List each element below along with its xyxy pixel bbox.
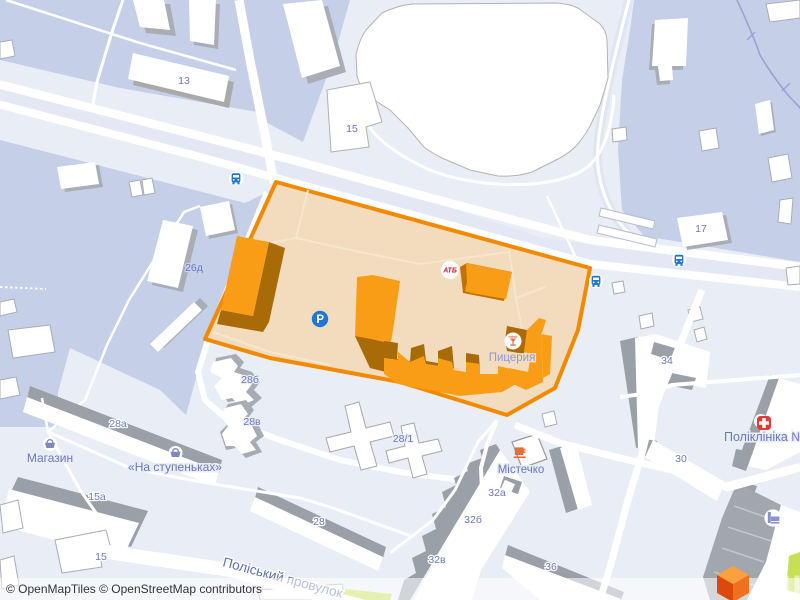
- svg-text:36: 36: [545, 561, 557, 573]
- svg-text:© OpenMapTiles © OpenStreetMap: © OpenMapTiles © OpenStreetMap contribut…: [6, 582, 262, 596]
- svg-text:15: 15: [95, 551, 107, 563]
- svg-text:30: 30: [675, 453, 687, 465]
- svg-text:26д: 26д: [185, 262, 203, 274]
- svg-text:15а: 15а: [88, 491, 106, 503]
- svg-text:13: 13: [178, 75, 190, 87]
- svg-text:ДН: ДН: [768, 569, 800, 600]
- svg-text:«На ступеньках»: «На ступеньках»: [128, 460, 222, 474]
- svg-text:28: 28: [313, 516, 325, 528]
- svg-text:32в: 32в: [428, 554, 446, 566]
- svg-text:28в: 28в: [243, 416, 261, 428]
- svg-text:Містечко: Містечко: [498, 464, 545, 476]
- svg-text:15: 15: [346, 123, 358, 135]
- svg-text:17: 17: [695, 223, 707, 235]
- svg-text:Магазин: Магазин: [27, 451, 73, 465]
- svg-text:Пицерия: Пицерия: [489, 352, 536, 364]
- svg-text:28а: 28а: [109, 418, 127, 430]
- svg-text:34: 34: [661, 355, 673, 367]
- svg-text:P: P: [316, 314, 324, 326]
- svg-text:32б: 32б: [464, 514, 482, 526]
- svg-text:28б: 28б: [241, 374, 259, 386]
- svg-text:28/1: 28/1: [393, 433, 414, 445]
- svg-text:АТБ: АТБ: [442, 268, 457, 275]
- svg-text:32а: 32а: [488, 487, 506, 499]
- svg-text:Поліклініка №2: Поліклініка №2: [724, 430, 800, 444]
